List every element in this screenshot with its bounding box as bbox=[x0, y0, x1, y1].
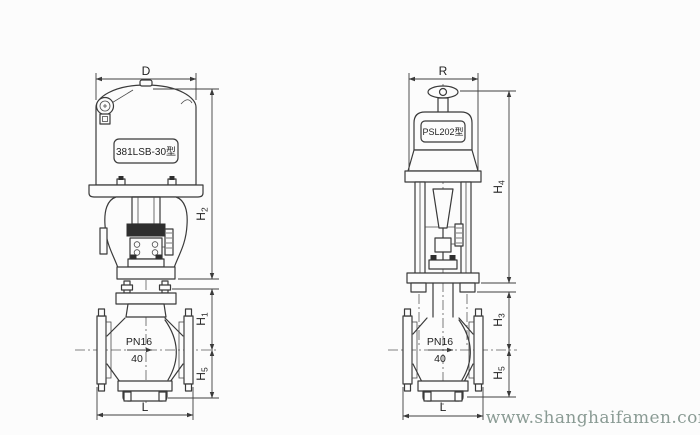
actuator-base-plate bbox=[89, 185, 203, 197]
pipe-flange-right bbox=[474, 316, 483, 384]
pipe-flange-tab-right bbox=[460, 283, 475, 292]
nominal-size-label: 40 bbox=[434, 353, 446, 365]
bottom-bolt bbox=[455, 392, 462, 401]
dim-H5-label: H5 bbox=[491, 366, 507, 380]
actuator-top-cap bbox=[140, 80, 152, 86]
right-valve-drawing: PSL202型 bbox=[388, 64, 517, 420]
flange-bolt bbox=[476, 309, 482, 316]
bottom-bolt bbox=[159, 392, 166, 401]
valve-dimension-drawing: 381LSB-30型 bbox=[0, 0, 700, 435]
stem-coupling-block bbox=[127, 224, 165, 236]
flange-bolt bbox=[405, 309, 411, 316]
bottom-bolt bbox=[124, 392, 131, 401]
actuator-skirt bbox=[408, 150, 478, 171]
flange-bolt bbox=[405, 384, 411, 391]
dim-H2-label: H2 bbox=[194, 207, 210, 221]
flange-bolt bbox=[186, 309, 192, 316]
flange-bolt bbox=[186, 384, 192, 391]
right-actuator: PSL202型 bbox=[405, 86, 481, 182]
bonnet-neck bbox=[126, 304, 166, 317]
gland-bolt bbox=[431, 256, 436, 260]
handwheel-hub bbox=[440, 89, 447, 96]
dim-D-label: D bbox=[142, 64, 151, 78]
mount-bolt-left-cap bbox=[119, 177, 123, 180]
dim-H4-label: H4 bbox=[491, 180, 507, 194]
handwheel-stem bbox=[438, 98, 448, 113]
stem-connector bbox=[435, 238, 451, 252]
dim-H3-label: H3 bbox=[491, 313, 507, 327]
tapered-stem bbox=[433, 189, 453, 228]
pressure-rating-label: PN16 bbox=[126, 336, 152, 348]
gland-bolt bbox=[156, 255, 161, 259]
technical-drawing-page: 381LSB-30型 bbox=[0, 0, 700, 435]
actuator-base-plate bbox=[405, 171, 481, 182]
bonnet-nut bbox=[122, 285, 133, 290]
bottom-flange-plate bbox=[118, 381, 172, 391]
yoke-side-tab bbox=[100, 228, 107, 254]
pipe-flange-left bbox=[97, 316, 106, 384]
flange-bolt bbox=[99, 309, 105, 316]
watermark-text: www.shanghaifamen.com bbox=[486, 408, 700, 428]
flange-bolt bbox=[476, 384, 482, 391]
bonnet-nut bbox=[160, 285, 171, 290]
mount-bolt-right-cap bbox=[170, 177, 174, 180]
left-actuator: 381LSB-30型 bbox=[89, 80, 203, 197]
dim-L-label: L bbox=[440, 400, 447, 414]
gland-bolt bbox=[131, 255, 136, 259]
bottom-flange-plate bbox=[418, 381, 468, 391]
flange-bolt bbox=[99, 384, 105, 391]
dim-H5-label: H5 bbox=[194, 367, 210, 381]
pipe-flange-tab-left bbox=[411, 283, 426, 292]
indicator-tab bbox=[100, 114, 110, 124]
actuator-model-label: PSL202型 bbox=[422, 127, 463, 137]
nominal-size-label: 40 bbox=[131, 353, 143, 365]
left-valve-drawing: 381LSB-30型 bbox=[75, 64, 219, 420]
gland-plate bbox=[128, 259, 164, 267]
gland-plate bbox=[429, 260, 457, 269]
pipe-flange-left bbox=[403, 316, 412, 384]
gland-bolt bbox=[450, 256, 455, 260]
bottom-bolt bbox=[424, 392, 431, 401]
dim-H1-label: H1 bbox=[194, 312, 210, 326]
dim-R-label: R bbox=[439, 64, 448, 78]
bonnet-flange bbox=[116, 293, 176, 304]
left-yoke bbox=[100, 197, 187, 279]
pipe-flange-right bbox=[184, 316, 193, 384]
dim-L-label: L bbox=[142, 400, 149, 414]
actuator-model-label: 381LSB-30型 bbox=[116, 145, 176, 158]
left-valve-body: PN16 40 bbox=[97, 309, 193, 401]
yoke-bottom-plate bbox=[117, 267, 175, 279]
pressure-rating-label: PN16 bbox=[427, 336, 453, 348]
bonnet-plate bbox=[407, 273, 479, 283]
